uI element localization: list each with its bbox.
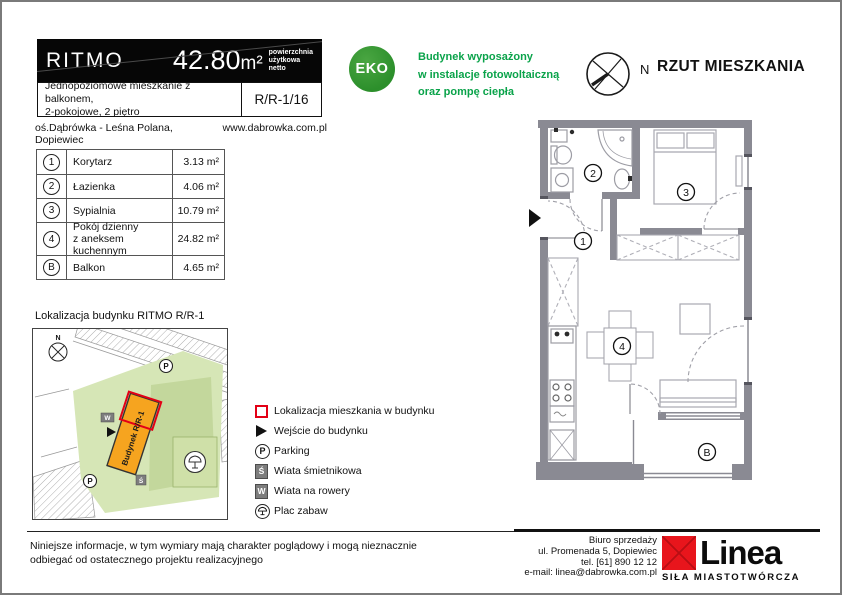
room-area: 24.82 m² — [172, 223, 224, 255]
table-row: 2 Łazienka 4.06 m² — [37, 174, 224, 198]
room-name: Balkon — [73, 262, 172, 274]
linea-logo-text: Linea — [700, 536, 781, 570]
kitchen-counter-icon — [548, 326, 576, 460]
room-number-badge: 1 — [43, 154, 60, 171]
stove-icon — [550, 380, 574, 406]
disclaimer: Niniejsze informacje, w tym wymiary mają… — [30, 539, 417, 567]
bathroom-cabinet-icon — [551, 130, 567, 142]
website-link[interactable]: www.dabrowka.com.pl — [223, 122, 327, 146]
entrance-door-arc — [548, 201, 585, 238]
footer-divider — [27, 531, 514, 532]
eco-badge-icon: EKO — [349, 46, 395, 92]
svg-text:P: P — [87, 477, 93, 486]
estate-address: oś.Dąbrówka - Leśna Polana, Dopiewiec — [35, 122, 223, 146]
room-area: 4.65 m² — [172, 256, 224, 279]
room-badge-b: B — [703, 447, 710, 459]
rooms-table: 1 Korytarz 3.13 m² 2 Łazienka 4.06 m² 3 … — [36, 149, 225, 280]
oven-icon — [550, 406, 574, 422]
room-badge-2: 2 — [590, 168, 596, 180]
area-value: 42.80 — [173, 45, 241, 76]
kitchen — [548, 326, 576, 460]
table-row: 1 Korytarz 3.13 m² — [37, 150, 224, 174]
room-area: 4.06 m² — [172, 175, 224, 198]
legend-item: W Wiata na rowery — [255, 483, 435, 499]
location-title: Lokalizacja budynku RITMO R/R-1 — [35, 310, 204, 322]
doors — [548, 193, 744, 414]
map-compass-icon: N — [49, 335, 67, 361]
compass-north-label: N — [640, 62, 649, 77]
room-name: Korytarz — [73, 156, 172, 168]
room-number-badge: 2 — [43, 178, 60, 195]
coffee-table-icon — [680, 304, 710, 334]
chair-icon — [609, 311, 631, 328]
header-bar: RITMO 42.80 m² powierzchnia użytkowa net… — [37, 39, 322, 82]
kitchen-taps — [555, 332, 570, 337]
bedroom-furniture — [654, 130, 742, 204]
map-legend: Lokalizacja mieszkania w budynku Wejście… — [255, 403, 435, 519]
table-row: 4 Pokój dzienny z aneksem kuchennym 24.8… — [37, 222, 224, 255]
kitchen-sink-icon — [551, 329, 573, 343]
trash-shed-icon: Ś — [255, 464, 274, 479]
flyer-page: RITMO 42.80 m² powierzchnia użytkowa net… — [0, 0, 842, 595]
table-row: 3 Sypialnia 10.79 m² — [37, 198, 224, 222]
room-name: Sypialnia — [73, 205, 172, 217]
interior-walls — [548, 128, 744, 420]
balcony — [632, 420, 750, 480]
office-address: ul. Promenada 5, Dopiewiec — [432, 547, 657, 558]
header-subbar: Jednopoziomowe mieszkanie z balkonem, 2-… — [37, 82, 322, 117]
bedroom-door-arc — [704, 193, 740, 229]
room-badge-4: 4 — [619, 341, 625, 353]
entrance-arrow-icon — [529, 209, 541, 227]
radiator-icon — [736, 156, 742, 186]
legend-item: Lokalizacja mieszkania w budynku — [255, 403, 435, 419]
legend-item: Wejście do budynku — [255, 423, 435, 439]
plan-title: RZUT MIESZKANIA — [657, 58, 805, 76]
playground-icon — [255, 504, 274, 519]
washer-drum-icon — [556, 174, 569, 187]
compass-icon — [582, 48, 634, 100]
area-label: powierzchnia użytkowa netto — [269, 49, 313, 73]
living-furniture — [660, 304, 736, 407]
area-display: 42.80 m² powierzchnia użytkowa netto — [173, 45, 313, 76]
shower-icon — [598, 130, 632, 166]
entrance-arrow-icon — [255, 424, 274, 438]
room-number-badge: 4 — [43, 231, 60, 248]
office-email[interactable]: e-mail: linea@dabrowka.com.pl — [432, 568, 657, 579]
washer-icon — [551, 168, 573, 192]
bathroom-fixtures — [551, 130, 632, 192]
room-name-line2: z aneksem kuchennym — [73, 233, 172, 257]
company-logo: Linea SIŁA MIASTOTWÓRCZA — [662, 536, 820, 583]
location-map: Budynek R/R-1 W Ś P P N — [32, 328, 228, 520]
svg-text:W: W — [104, 415, 111, 422]
room-number-badge: B — [43, 259, 60, 276]
balcony-door-arc — [630, 384, 660, 414]
footer-divider-bold — [514, 529, 820, 532]
room-badge-3: 3 — [683, 187, 689, 199]
project-name: RITMO — [46, 49, 124, 73]
room-badge-1: 1 — [580, 236, 586, 248]
sales-office-info: Biuro sprzedaży ul. Promenada 5, Dopiewi… — [432, 536, 657, 579]
room-name: Łazienka — [73, 181, 172, 193]
svg-text:P: P — [163, 362, 169, 371]
eco-description: Budynek wyposażony w instalacje fotowolt… — [418, 49, 559, 102]
svg-text:Ś: Ś — [139, 476, 144, 485]
chair-icon — [587, 332, 604, 358]
parking-icon: P — [255, 444, 274, 459]
room-name: Pokój dzienny — [73, 221, 172, 233]
exterior-walls — [536, 120, 752, 480]
linea-tagline: SIŁA MIASTOTWÓRCZA — [662, 572, 820, 583]
room-area: 10.79 m² — [172, 199, 224, 222]
sink-icon — [615, 169, 630, 189]
room-area: 3.13 m² — [172, 150, 224, 174]
address-row: oś.Dąbrówka - Leśna Polana, Dopiewiec ww… — [35, 122, 327, 146]
area-unit: m² — [241, 53, 263, 75]
legend-item: P Parking — [255, 443, 435, 459]
chair-icon — [636, 332, 653, 358]
bathroom-door-arc — [570, 199, 602, 231]
apartment-description: Jednopoziomowe mieszkanie z balkonem, 2-… — [38, 83, 241, 116]
floor-plan: 1 2 3 4 B — [502, 110, 802, 505]
table-row: B Balkon 4.65 m² — [37, 255, 224, 279]
chair-icon — [609, 364, 631, 381]
map-compass-north: N — [55, 335, 60, 342]
unit-code: R/R-1/16 — [241, 83, 321, 116]
legend-item: Plac zabaw — [255, 503, 435, 519]
room-number-badge: 3 — [43, 202, 60, 219]
legend-item: Ś Wiata śmietnikowa — [255, 463, 435, 479]
bike-shed-icon: W — [255, 484, 274, 499]
linea-logo-mark-icon — [662, 536, 696, 570]
apartment-location-icon — [255, 405, 274, 418]
sofa-icon — [660, 380, 736, 402]
